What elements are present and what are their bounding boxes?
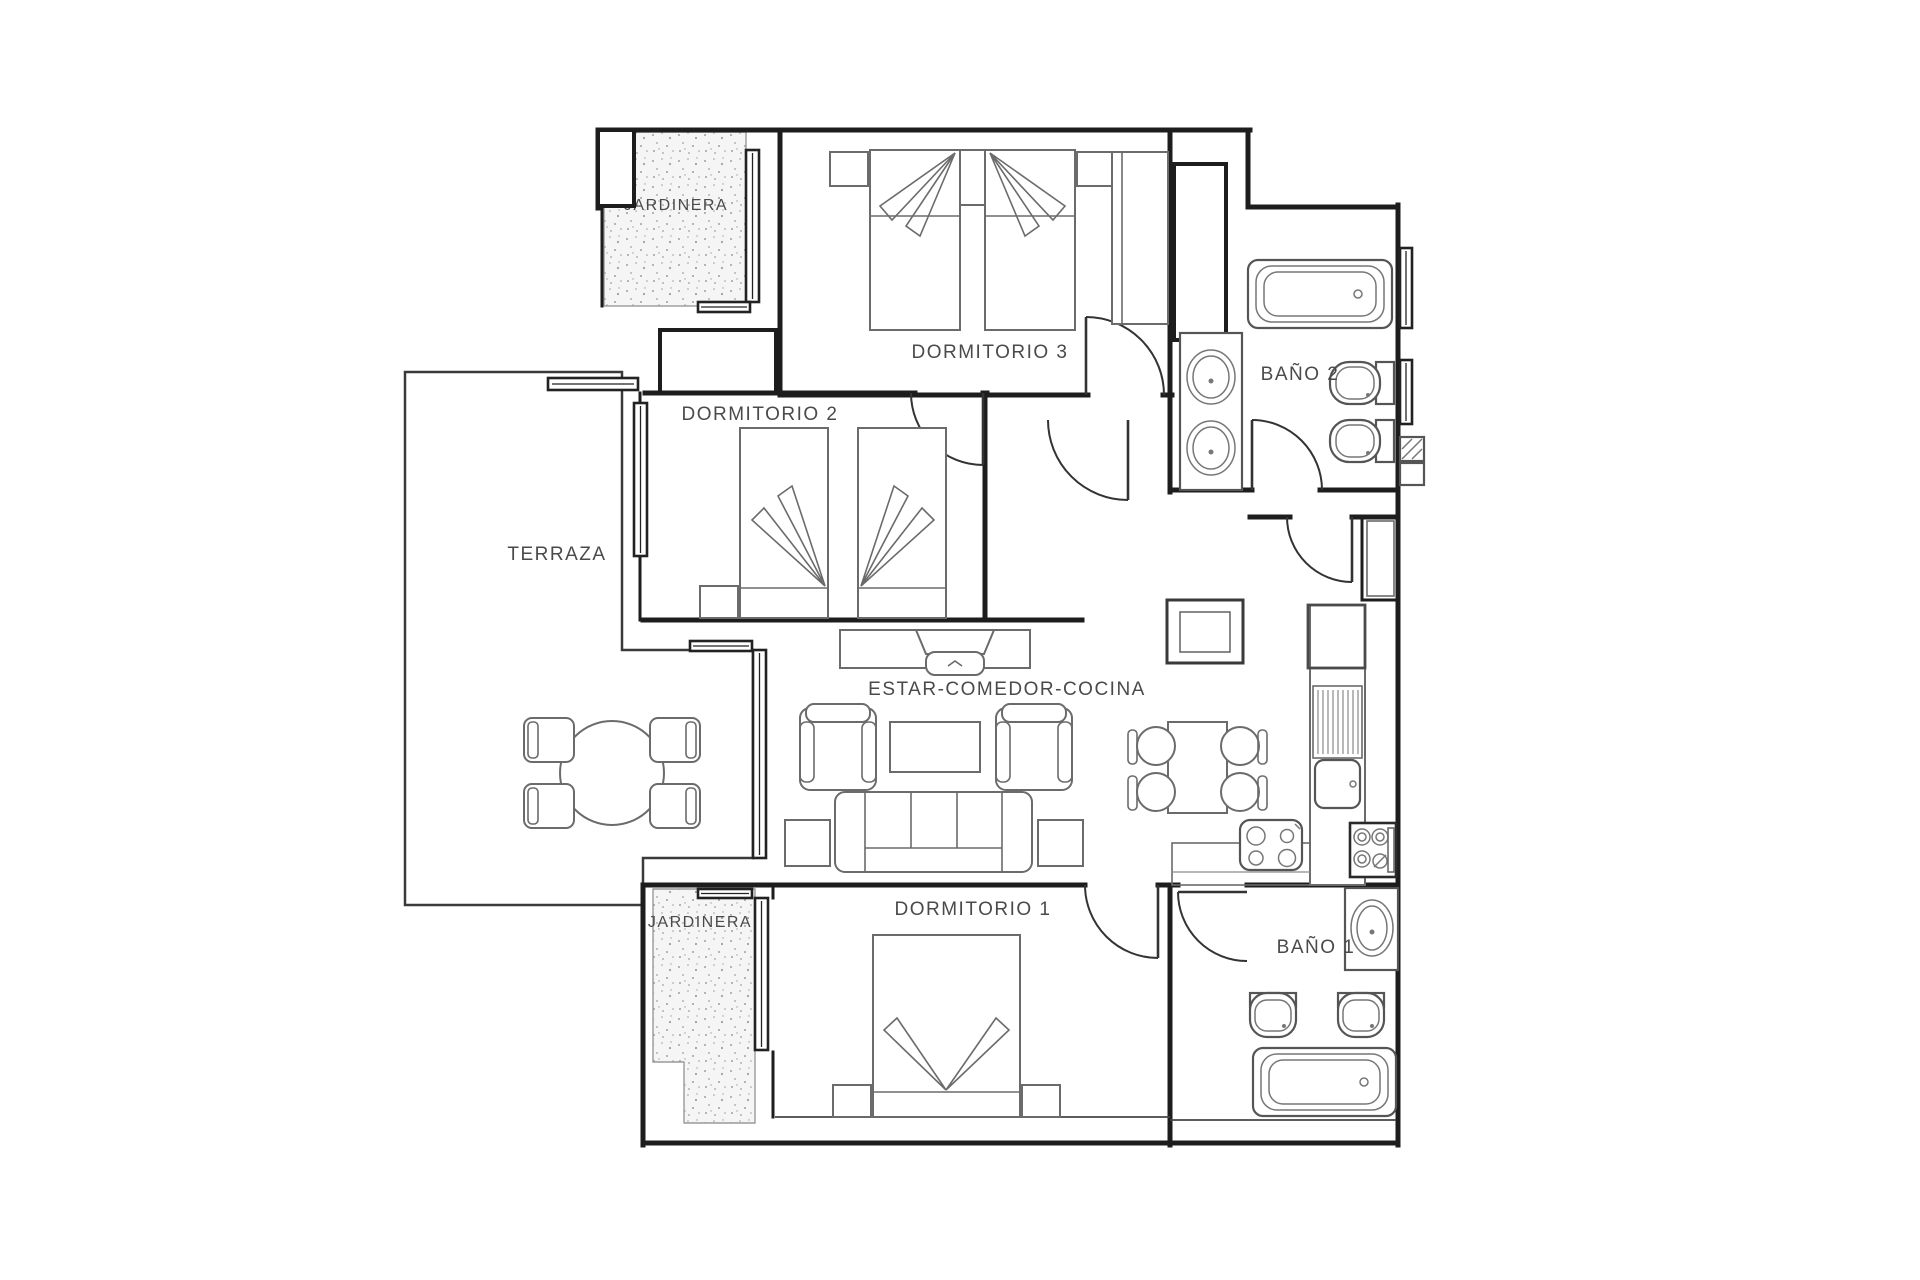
dormitorio1-west-window (755, 898, 768, 1050)
terrace-chair (524, 718, 574, 762)
terrace-round-table (560, 721, 664, 825)
wall-pier-closet (1174, 164, 1226, 340)
bano1-door (1178, 892, 1247, 961)
wall-pier-topleft (598, 130, 634, 206)
bano2-door (1252, 420, 1322, 490)
wardrobe (1112, 152, 1168, 324)
square-table (1167, 600, 1243, 663)
dining-table-set (1128, 722, 1267, 813)
vanity-double-sink (1180, 333, 1242, 490)
nightstand (1022, 1085, 1060, 1117)
bed-single (870, 150, 960, 330)
dormitorio2-label: DORMITORIO 2 (682, 404, 839, 425)
bano2-east-window-lower (1400, 360, 1412, 424)
bed-single (858, 428, 946, 618)
cooktop (1240, 820, 1302, 870)
floor-plan-drawing: TERRAZA JARDINERA JARDINERA (0, 0, 1920, 1280)
dormitorio2-west-window (634, 403, 647, 556)
coffee-table (890, 722, 980, 772)
nightstand (1077, 152, 1113, 186)
living-west-window (753, 650, 766, 858)
bano1-label: BAÑO 1 (1277, 936, 1356, 958)
terrace-chair (524, 784, 574, 828)
bidet (1338, 993, 1384, 1037)
jardinera-top-window-bar (698, 302, 750, 312)
bathtub (1253, 1048, 1396, 1116)
bathtub (1248, 260, 1392, 328)
dormitorio1-door (1085, 885, 1158, 958)
side-table (1038, 820, 1083, 866)
bed-double (873, 935, 1020, 1117)
hallway-door (1048, 420, 1128, 500)
terraza-label: TERRAZA (507, 544, 606, 565)
bidet (1330, 420, 1394, 462)
terraza-floor (405, 372, 753, 905)
armchair (800, 704, 876, 790)
jardinera-bottom: JARDINERA (648, 889, 768, 1123)
wall-pier-dorm2 (660, 330, 776, 393)
estar-label: ESTAR-COMEDOR-COCINA (868, 679, 1146, 700)
tv (916, 630, 994, 675)
jardinera-top-label: JARDINERA (624, 197, 728, 214)
hob-oven (1350, 823, 1396, 877)
dormitorio2-room: DORMITORIO 2 (682, 404, 947, 618)
toilet (1250, 993, 1296, 1037)
dormitorio3-door (1086, 317, 1164, 395)
dormitorio1-room: DORMITORIO 1 (833, 899, 1060, 1117)
services-shaft (1367, 521, 1394, 596)
dormitorio3-label: DORMITORIO 3 (912, 342, 1069, 363)
floor-plan-page: TERRAZA JARDINERA JARDINERA (0, 0, 1920, 1280)
nightstand (830, 152, 868, 186)
armchair (996, 704, 1072, 790)
jardinera-bottom-label: JARDINERA (648, 914, 752, 931)
terrace-chair (650, 784, 700, 828)
toilet (1330, 362, 1394, 404)
nightstand (960, 150, 985, 205)
bano2-label: BAÑO 2 (1261, 363, 1340, 385)
bed-single (740, 428, 828, 618)
nightstand (833, 1085, 871, 1117)
bano1-room: BAÑO 1 (1250, 888, 1398, 1116)
terraza-window-bar (548, 378, 638, 390)
dining-chair (1221, 727, 1267, 765)
terrace-chair (650, 718, 700, 762)
dining-chair (1221, 773, 1267, 811)
dormitorio1-label: DORMITORIO 1 (895, 899, 1052, 920)
dormitorio3-room: DORMITORIO 3 (830, 150, 1168, 363)
jardinera-top-window (746, 150, 759, 302)
jardinera-bottom-window-bar (698, 889, 752, 898)
sofa (835, 792, 1032, 872)
bed-single (985, 150, 1075, 330)
water-heater (1400, 437, 1424, 485)
kitchen-door (1287, 517, 1352, 582)
nightstand (700, 586, 738, 618)
dining-chair (1128, 727, 1175, 765)
dining-chair (1128, 773, 1175, 811)
bano2-east-window-upper (1400, 248, 1412, 328)
terrace-table-set (524, 718, 700, 828)
terraza-room: TERRAZA (405, 372, 753, 905)
living-west-window-bar (690, 641, 752, 651)
side-table (785, 820, 830, 866)
